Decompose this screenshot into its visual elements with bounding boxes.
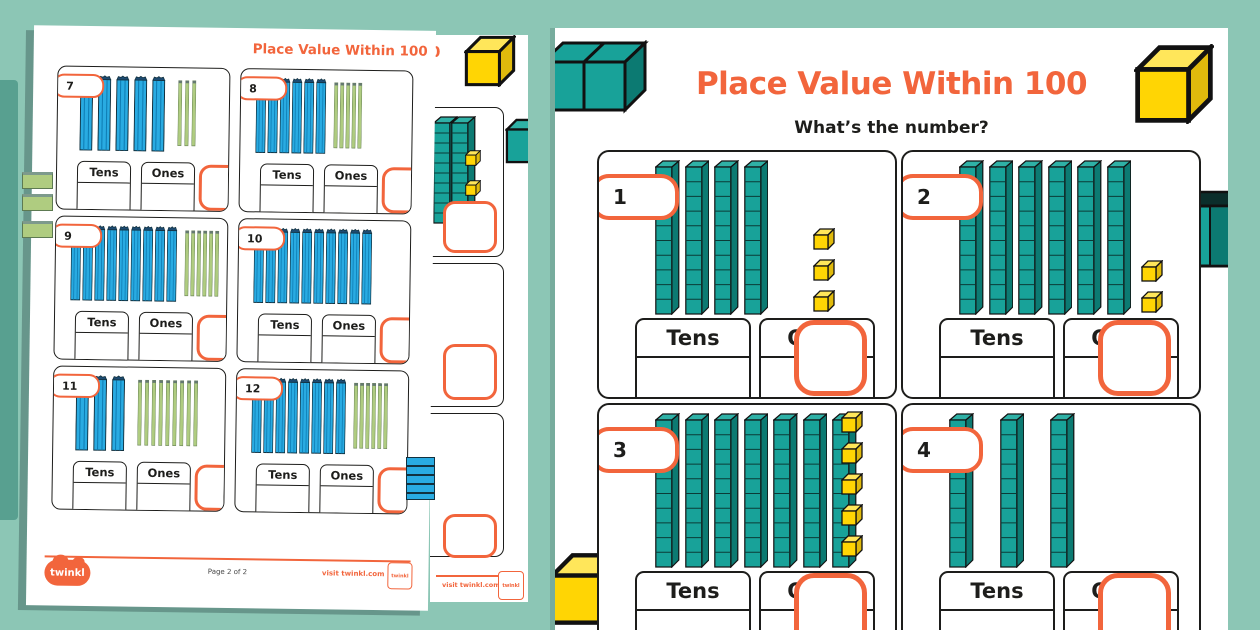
ones-sticks: [333, 82, 362, 148]
tens-rod: [1077, 160, 1102, 315]
twinkl-quality-badge: twinkl: [387, 562, 412, 589]
tens-rod: [323, 378, 334, 454]
ones-cube: [465, 150, 481, 166]
tens-rod: [337, 228, 348, 304]
one-stick: [351, 83, 356, 149]
tens-rod: [299, 378, 310, 454]
question-number-badge: 9: [53, 223, 102, 248]
tens-label: Tens: [78, 162, 130, 184]
ones-cube: [841, 411, 863, 433]
ones-cube: [841, 504, 863, 526]
ones-box: Ones: [319, 464, 374, 514]
teal-cube: [505, 118, 528, 164]
one-stick: [357, 83, 362, 149]
green-rod-decoration: [22, 221, 53, 238]
worksheet-preview: 0: [0, 0, 1260, 630]
tens-label: Tens: [637, 320, 749, 358]
one-stick: [144, 380, 149, 446]
twinkl-quality-badge: twinkl: [498, 571, 524, 600]
question-card: 12: [234, 368, 409, 514]
ones-cube: [465, 180, 481, 196]
one-stick: [191, 80, 196, 146]
tens-rod: [1018, 160, 1043, 315]
ones-cube: [813, 259, 835, 281]
tens-box: Tens: [259, 163, 314, 214]
one-stick: [158, 380, 163, 446]
one-stick: [333, 82, 338, 148]
one-stick: [137, 380, 142, 446]
question-card: 11: [51, 366, 226, 512]
one-stick: [186, 380, 191, 446]
question-number: 4: [917, 438, 931, 462]
green-rod-decoration: [22, 172, 53, 189]
question-number: 2: [917, 185, 931, 209]
tens-rod: [142, 226, 153, 302]
one-stick: [377, 383, 382, 449]
answer-box: [194, 465, 226, 512]
tens-label: Tens: [74, 462, 126, 484]
visit-link-text: visit twinkl.com: [442, 581, 500, 589]
logo-text: twinkl: [50, 567, 85, 578]
tens-box: Tens: [74, 311, 129, 362]
question-number-badge: 11: [51, 373, 100, 398]
one-stick: [339, 83, 344, 149]
tens-rod: [289, 228, 300, 304]
ones-cube: [465, 150, 481, 166]
question-card: 9: [53, 216, 228, 362]
ones-label: Ones: [325, 165, 377, 187]
answer-box: [794, 320, 867, 396]
tens-label: Tens: [261, 164, 313, 186]
one-stick: [383, 383, 388, 449]
tens-label: Tens: [941, 573, 1053, 611]
answer-box: [443, 344, 497, 400]
tens-box: Tens: [939, 571, 1055, 630]
badge-text: twinkl: [391, 573, 408, 579]
tens-rod: [335, 378, 346, 454]
tens-rod: [151, 76, 165, 152]
tens-rod: [115, 75, 129, 151]
tens-box: Tens: [635, 318, 751, 399]
blue-rod-end-decoration: [406, 457, 435, 500]
tens-rod: [349, 229, 360, 305]
ones-cube: [464, 35, 516, 87]
ones-label: Ones: [321, 465, 373, 487]
ones-sticks: [177, 80, 196, 146]
tens-rod: [313, 228, 324, 304]
tens-rod: [989, 160, 1014, 315]
question-card: 1 Tens Ones: [597, 150, 897, 399]
ones-label: Ones: [323, 315, 375, 337]
question-number: 10: [247, 232, 262, 245]
yellow-cube-decoration: [464, 35, 516, 87]
tens-box: Tens: [257, 313, 312, 364]
tens-label: Tens: [941, 320, 1053, 358]
one-stick: [208, 231, 213, 297]
ones-cube: [1141, 291, 1163, 313]
answer-box: [443, 514, 497, 558]
answer-box: [1098, 320, 1171, 396]
answer-box: [198, 165, 230, 212]
one-stick: [359, 383, 364, 449]
tens-box: Tens: [635, 571, 751, 630]
tens-box: Tens: [255, 463, 310, 514]
tens-rod: [714, 160, 739, 315]
tens-rod: [744, 413, 769, 568]
one-stick: [345, 83, 350, 149]
answer-box: [196, 315, 228, 362]
ones-sticks: [137, 380, 198, 447]
answer-box: [377, 467, 409, 514]
one-stick: [151, 380, 156, 446]
one-stick: [190, 230, 195, 296]
answer-box: [381, 167, 413, 214]
badge-text: twinkl: [502, 583, 519, 589]
question-number: 3: [613, 438, 627, 462]
ones-cube: [841, 535, 863, 557]
ones-label: Ones: [138, 463, 190, 485]
one-stick: [172, 380, 177, 446]
ones-cubes: [1141, 260, 1163, 313]
tens-rod: [685, 413, 710, 568]
tens-label: Tens: [257, 464, 309, 486]
ones-cubes: [813, 228, 835, 312]
ones-cube: [813, 228, 835, 250]
green-rod-decoration: [22, 194, 53, 211]
ones-box: Ones: [323, 164, 378, 214]
base-ten-rods: [655, 413, 857, 568]
tens-rod: [154, 226, 165, 302]
ones-cube: [813, 290, 835, 312]
answer-box: [794, 573, 867, 630]
question-number: 9: [64, 229, 72, 242]
question-card: 7 Tens Ones: [55, 66, 230, 212]
question-number-badge: 12: [234, 376, 283, 401]
answer-box: [379, 317, 411, 364]
one-stick: [365, 383, 370, 449]
tens-rod: [1000, 413, 1025, 568]
tens-rod: [1107, 160, 1132, 315]
question-number-badge: 3: [597, 427, 679, 473]
twinkl-logo: twinkl: [44, 559, 90, 586]
question-number-badge: 10: [236, 226, 285, 251]
tens-box: Tens: [76, 161, 131, 212]
partial-question-card: [430, 107, 504, 257]
one-stick: [184, 80, 189, 146]
ones-cubes: [841, 411, 863, 557]
question-number: 11: [62, 379, 77, 392]
tens-rod: [287, 378, 298, 454]
one-stick: [214, 231, 219, 297]
question-card: 4 Tens Ones: [901, 403, 1201, 630]
back-worksheet-page: 0: [430, 35, 528, 602]
one-stick: [193, 380, 198, 446]
question-number-badge: 4: [901, 427, 983, 473]
ones-cube: [465, 180, 481, 196]
teal-cube-decoration: [505, 118, 528, 164]
tens-rod: [111, 375, 125, 451]
question-number-badge: 7: [55, 73, 104, 98]
tens-rod: [118, 225, 129, 301]
answer-box: [443, 201, 497, 253]
teal-rod-edge-decoration: [0, 80, 18, 520]
ones-box: Ones: [321, 314, 376, 364]
tens-rod: [685, 160, 710, 315]
page-header-title: Place Value Within 100: [253, 41, 428, 59]
tens-rod: [166, 226, 177, 302]
tens-rod: [773, 413, 798, 568]
question-card: 8: [238, 68, 413, 214]
one-stick: [371, 383, 376, 449]
ones-box: Ones: [136, 462, 191, 512]
tens-rod: [1048, 160, 1073, 315]
tens-rod: [803, 413, 828, 568]
ones-label: Ones: [140, 313, 192, 335]
tens-box: Tens: [72, 461, 127, 512]
answer-box: [1098, 573, 1171, 630]
question-number: 1: [613, 185, 627, 209]
tens-rod: [325, 228, 336, 304]
footer-divider: [45, 555, 411, 562]
tens-rod: [291, 78, 302, 154]
base-ten-rods: [959, 160, 1131, 315]
tens-rod: [301, 228, 312, 304]
one-stick: [196, 231, 201, 297]
tens-rod: [130, 226, 141, 302]
ones-box: Ones: [138, 312, 193, 362]
tens-rod: [106, 225, 117, 301]
partial-question-card: [430, 263, 504, 407]
one-stick: [202, 231, 207, 297]
ones-cube: [841, 473, 863, 495]
right-worksheet-page: Place Value Within 100 What’s the number…: [555, 28, 1228, 630]
worksheet-subtitle: What’s the number?: [555, 118, 1228, 138]
question-number-badge: 2: [901, 174, 983, 220]
question-number-badge: 8: [238, 76, 287, 101]
tens-label: Tens: [76, 312, 128, 334]
question-card: 3: [597, 403, 897, 630]
question-card: 2 Tens: [901, 150, 1201, 399]
one-stick: [177, 80, 182, 146]
worksheet-title: Place Value Within 100: [555, 66, 1228, 102]
tens-rod: [311, 378, 322, 454]
tens-box: Tens: [939, 318, 1055, 399]
tens-rod: [1050, 413, 1075, 568]
one-stick: [353, 383, 358, 449]
ones-sticks: [184, 230, 219, 296]
partial-question-card: [430, 413, 504, 557]
ones-box: Ones: [140, 162, 195, 212]
question-number: 8: [249, 82, 257, 95]
one-stick: [184, 230, 189, 296]
tens-label: Tens: [637, 573, 749, 611]
question-number: 7: [66, 79, 74, 92]
visit-link-text: visit twinkl.com: [322, 569, 385, 578]
tens-rod: [133, 76, 147, 152]
ones-label: Ones: [142, 163, 194, 185]
tens-rod: [303, 78, 314, 154]
ones-cube: [841, 442, 863, 464]
one-stick: [179, 380, 184, 446]
tens-rod: [361, 229, 372, 305]
tens-rod: [315, 78, 326, 154]
ones-sticks: [353, 383, 388, 449]
tens-rod: [744, 160, 769, 315]
tens-rod: [714, 413, 739, 568]
one-stick: [165, 380, 170, 446]
question-card: 10: [236, 218, 411, 364]
tens-label: Tens: [259, 314, 311, 336]
question-number: 12: [245, 382, 260, 395]
question-number-badge: 1: [597, 174, 679, 220]
ones-cube: [1141, 260, 1163, 282]
left-worksheet-page: Place Value Within 100 7: [26, 25, 436, 611]
